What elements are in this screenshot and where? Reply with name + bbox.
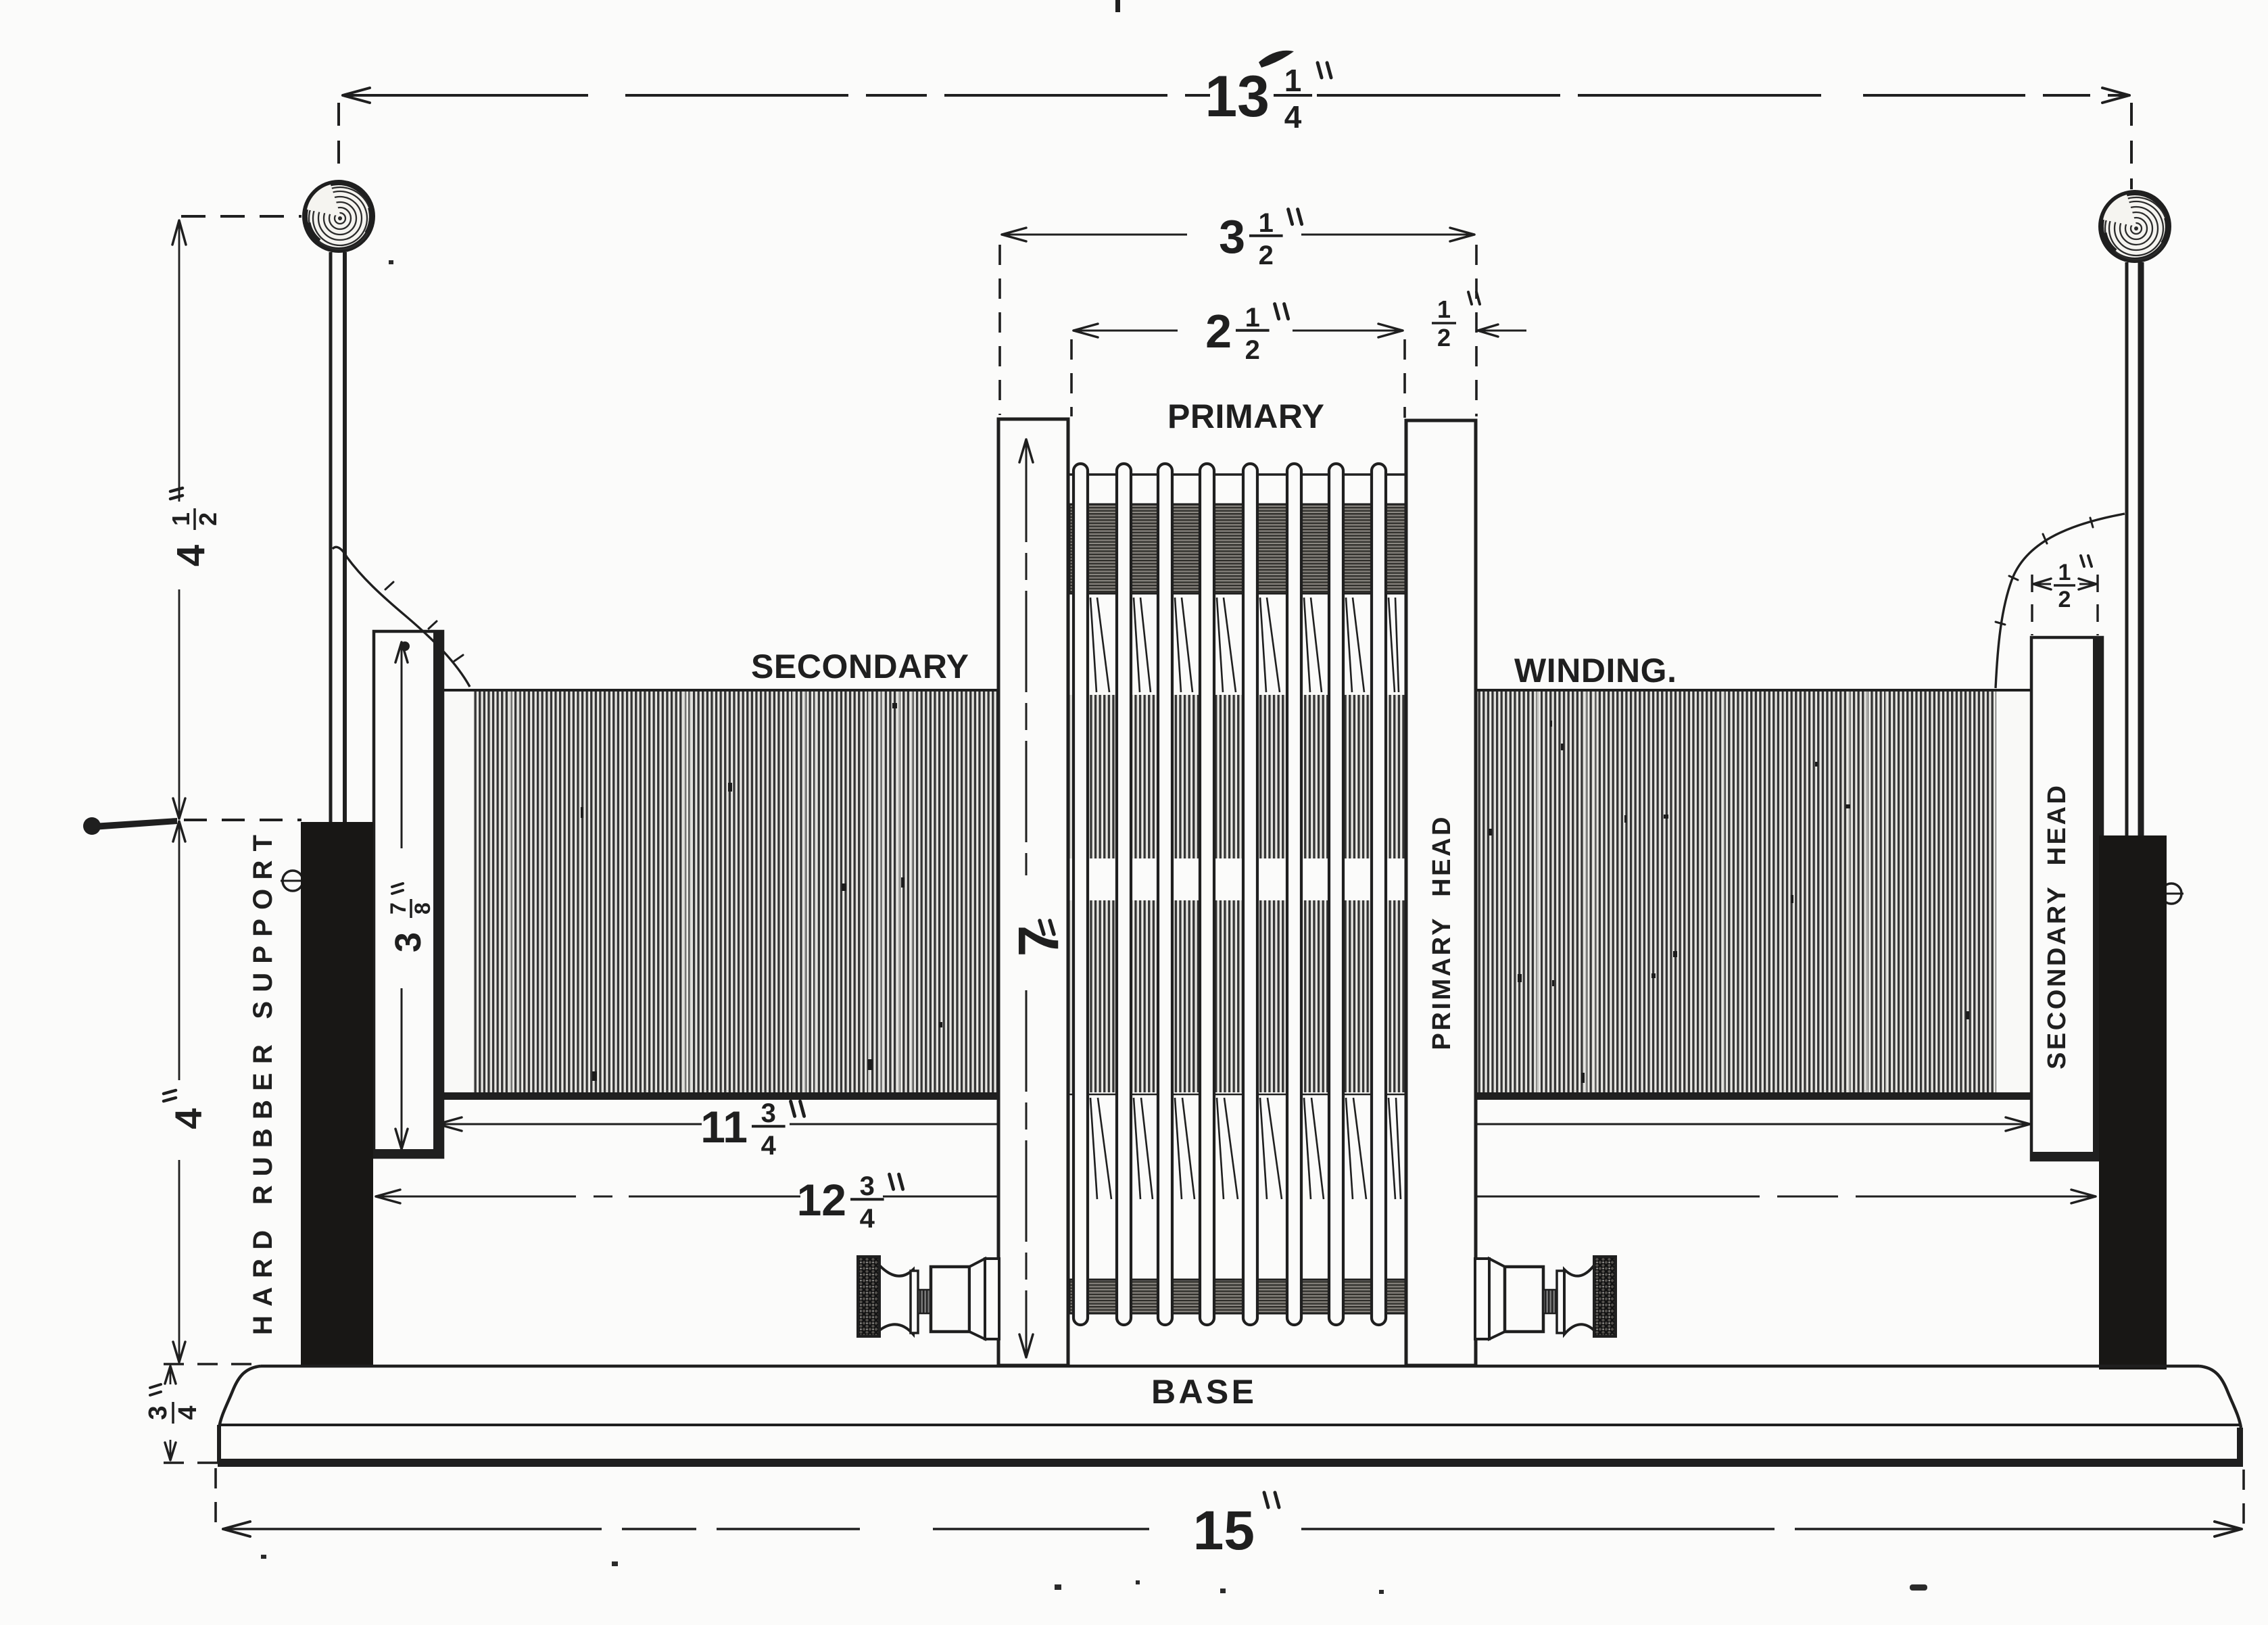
- svg-text:12: 12: [797, 1175, 846, 1225]
- svg-text:2: 2: [1437, 324, 1451, 351]
- svg-text:1: 1: [1259, 208, 1274, 238]
- svg-text:4: 4: [167, 1108, 210, 1129]
- svg-text:1: 1: [167, 512, 195, 526]
- svg-text:8: 8: [410, 902, 435, 915]
- svg-text:7: 7: [386, 902, 410, 915]
- svg-text:3: 3: [1219, 210, 1245, 263]
- svg-text:4: 4: [1284, 99, 1302, 135]
- svg-text:2: 2: [194, 512, 222, 526]
- svg-text:4: 4: [860, 1204, 875, 1234]
- svg-text:4: 4: [174, 1405, 202, 1420]
- svg-text:2: 2: [1245, 335, 1260, 365]
- svg-text:PRIMARY: PRIMARY: [1167, 397, 1324, 435]
- svg-text:15: 15: [1193, 1500, 1255, 1561]
- svg-text:1: 1: [1245, 303, 1260, 333]
- svg-text:2: 2: [2058, 587, 2071, 612]
- svg-text:7: 7: [1007, 925, 1070, 957]
- svg-text:1: 1: [1437, 295, 1451, 323]
- svg-text:3: 3: [761, 1098, 776, 1128]
- svg-text:HARD RUBBER SUPPORT: HARD RUBBER SUPPORT: [248, 835, 278, 1335]
- svg-text:4: 4: [761, 1131, 777, 1161]
- svg-text:11: 11: [700, 1102, 748, 1152]
- svg-text:2: 2: [1205, 305, 1232, 358]
- svg-text:2: 2: [1259, 241, 1274, 270]
- svg-text:3: 3: [144, 1405, 172, 1420]
- svg-text:4: 4: [169, 545, 213, 566]
- svg-text:SECONDARY HEAD: SECONDARY HEAD: [2043, 785, 2071, 1069]
- svg-text:PRIMARY HEAD: PRIMARY HEAD: [1428, 817, 1456, 1050]
- svg-text:1: 1: [2058, 560, 2071, 585]
- svg-text:3: 3: [388, 932, 429, 952]
- svg-text:WINDING.: WINDING.: [1514, 652, 1676, 689]
- svg-text:SECONDARY: SECONDARY: [751, 648, 969, 685]
- svg-text:3: 3: [860, 1171, 875, 1201]
- svg-text:BASE: BASE: [1151, 1373, 1254, 1411]
- svg-text:1: 1: [1284, 63, 1302, 98]
- svg-text:13: 13: [1205, 64, 1270, 129]
